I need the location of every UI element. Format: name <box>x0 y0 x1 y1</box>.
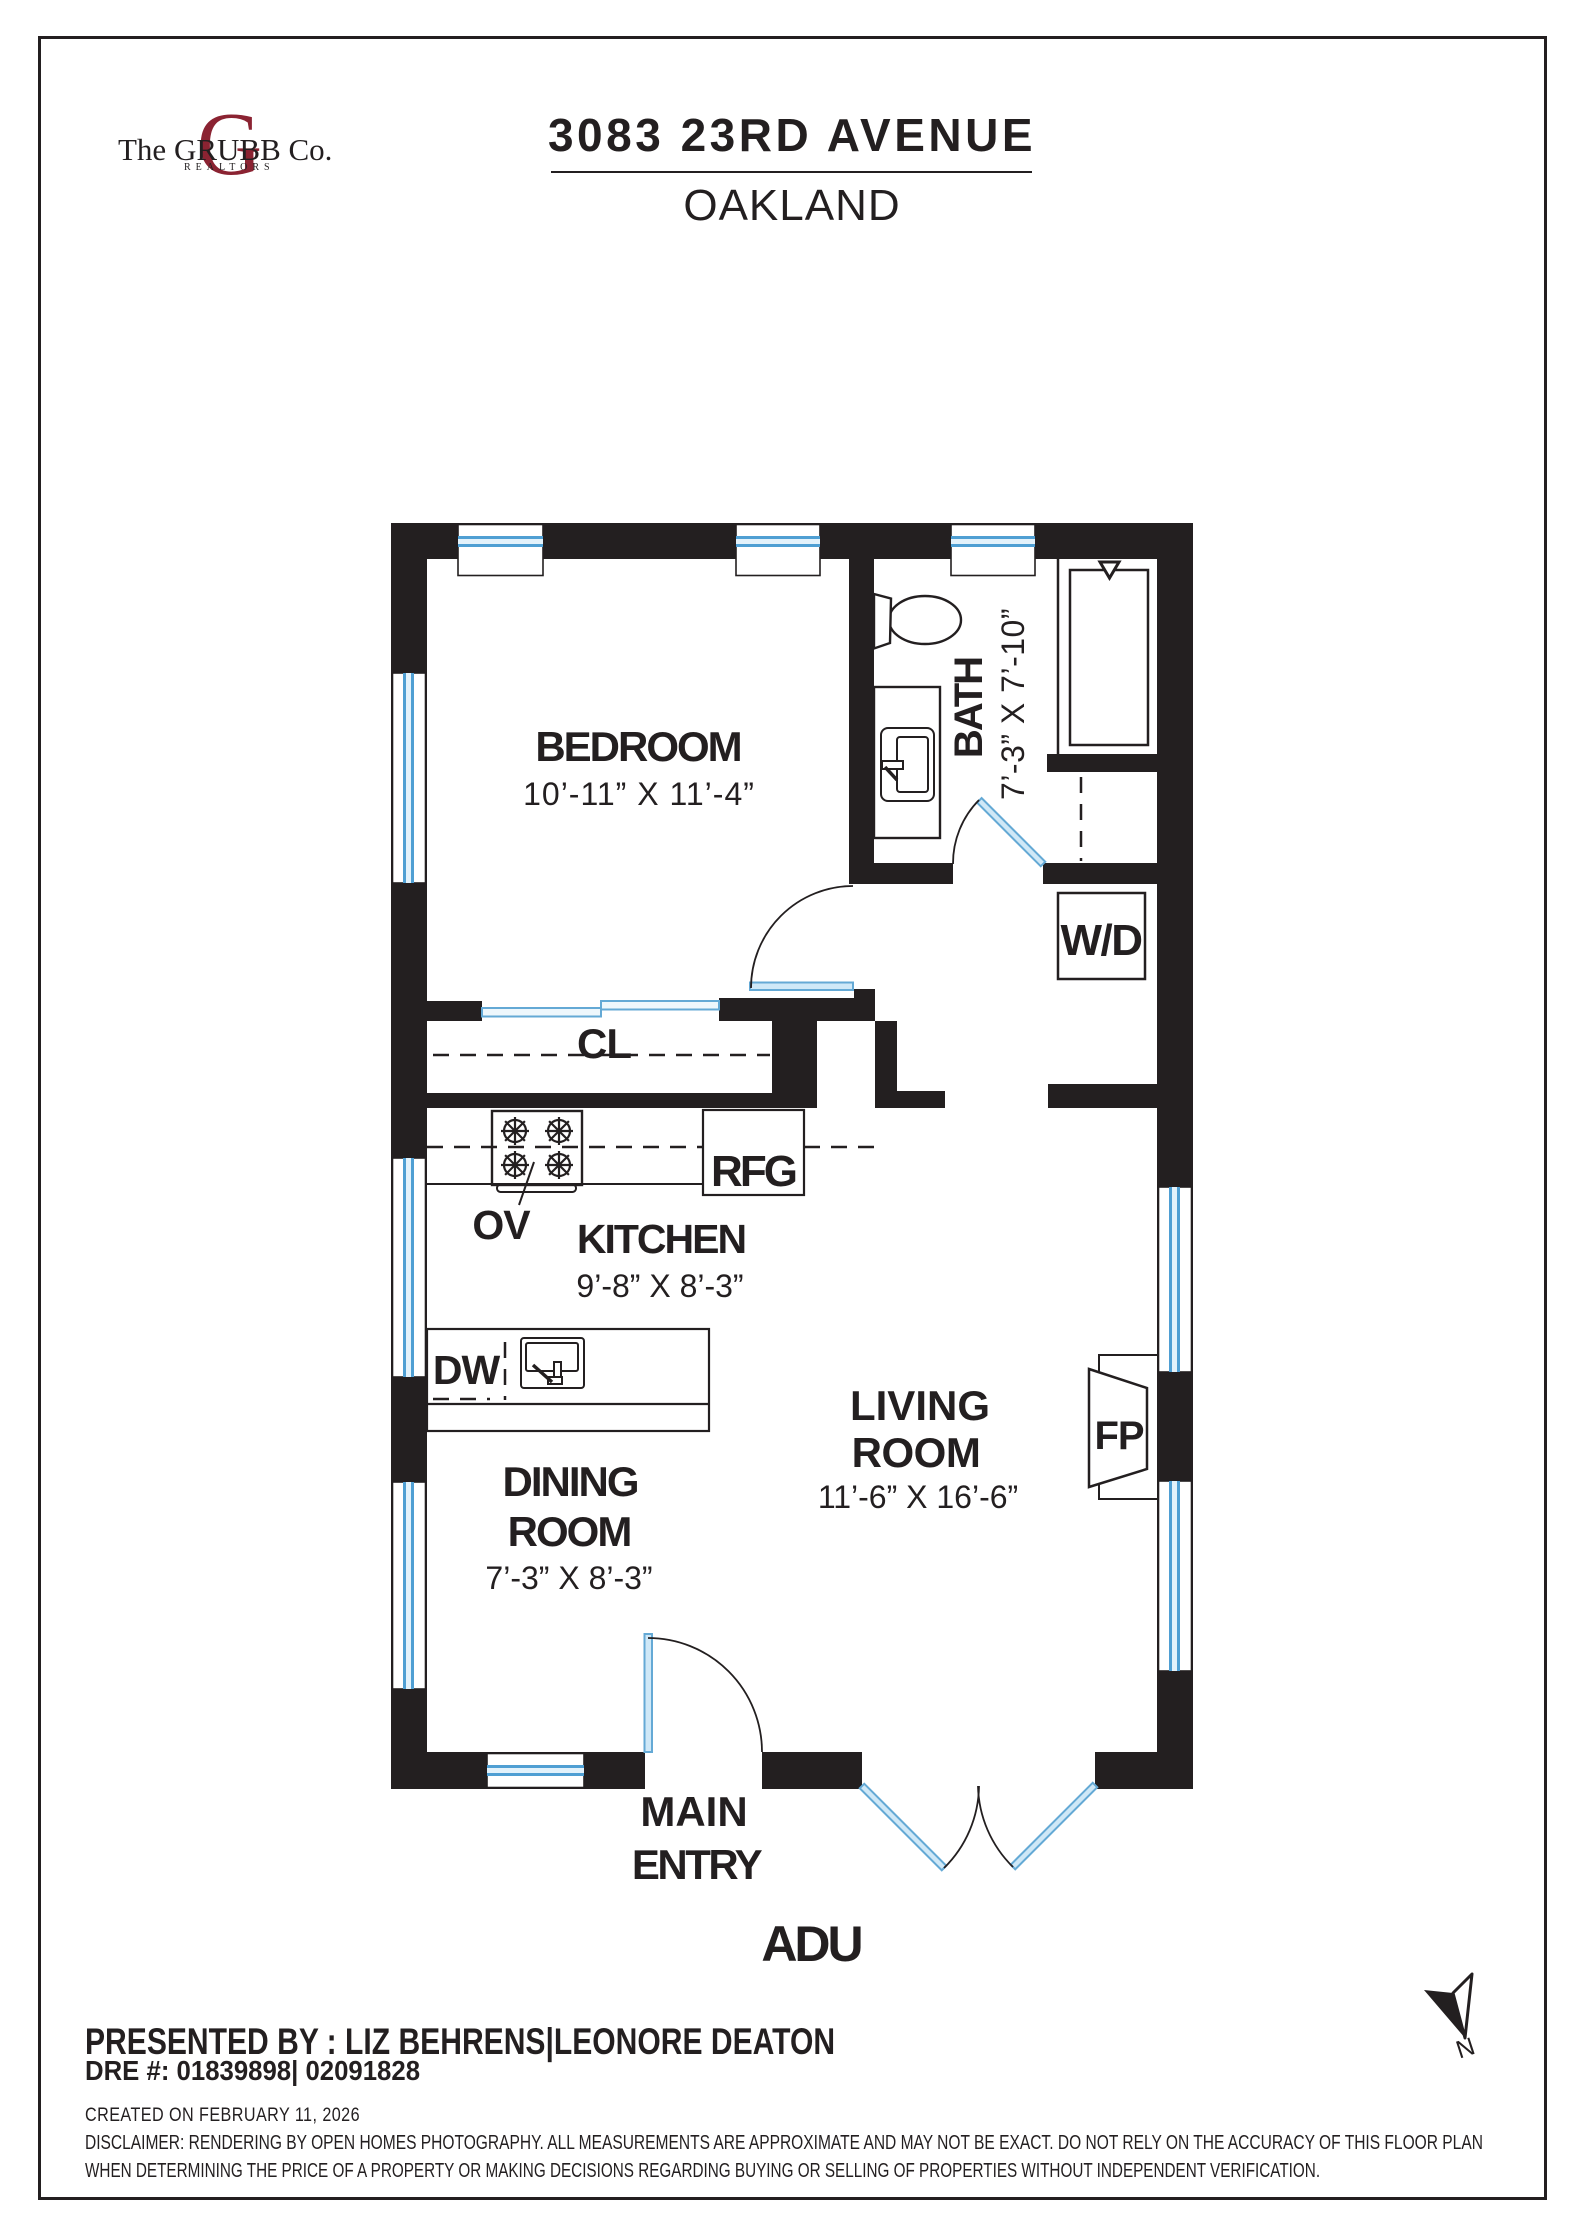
svg-text:DINING: DINING <box>503 1458 638 1505</box>
svg-text:KITCHEN: KITCHEN <box>577 1216 745 1262</box>
svg-text:ADU: ADU <box>761 1916 861 1972</box>
svg-text:BEDROOM: BEDROOM <box>535 723 740 770</box>
svg-text:7’-3” X 8’-3”: 7’-3” X 8’-3” <box>485 1560 652 1596</box>
svg-text:11’-6” X 16’-6”: 11’-6” X 16’-6” <box>818 1479 1018 1515</box>
svg-text:7’-3” X 7’-10”: 7’-3” X 7’-10” <box>995 608 1031 800</box>
svg-text:RFG: RFG <box>711 1147 796 1196</box>
svg-text:OV: OV <box>472 1202 531 1248</box>
svg-text:DW: DW <box>433 1347 501 1393</box>
svg-text:CL: CL <box>577 1020 631 1067</box>
svg-text:MAIN: MAIN <box>640 1788 747 1835</box>
svg-text:9’-8” X 8’-3”: 9’-8” X 8’-3” <box>576 1268 743 1304</box>
svg-text:10’-11” X 11’-4”: 10’-11” X 11’-4” <box>523 776 755 812</box>
svg-text:ENTRY: ENTRY <box>632 1841 763 1888</box>
svg-text:W/D: W/D <box>1060 916 1141 965</box>
svg-text:FP: FP <box>1094 1414 1143 1458</box>
svg-text:ROOM: ROOM <box>852 1429 981 1476</box>
svg-text:N: N <box>1453 2032 1479 2064</box>
svg-text:LIVING: LIVING <box>850 1382 990 1429</box>
svg-text:BATH: BATH <box>947 658 991 758</box>
svg-text:ROOM: ROOM <box>508 1508 631 1555</box>
